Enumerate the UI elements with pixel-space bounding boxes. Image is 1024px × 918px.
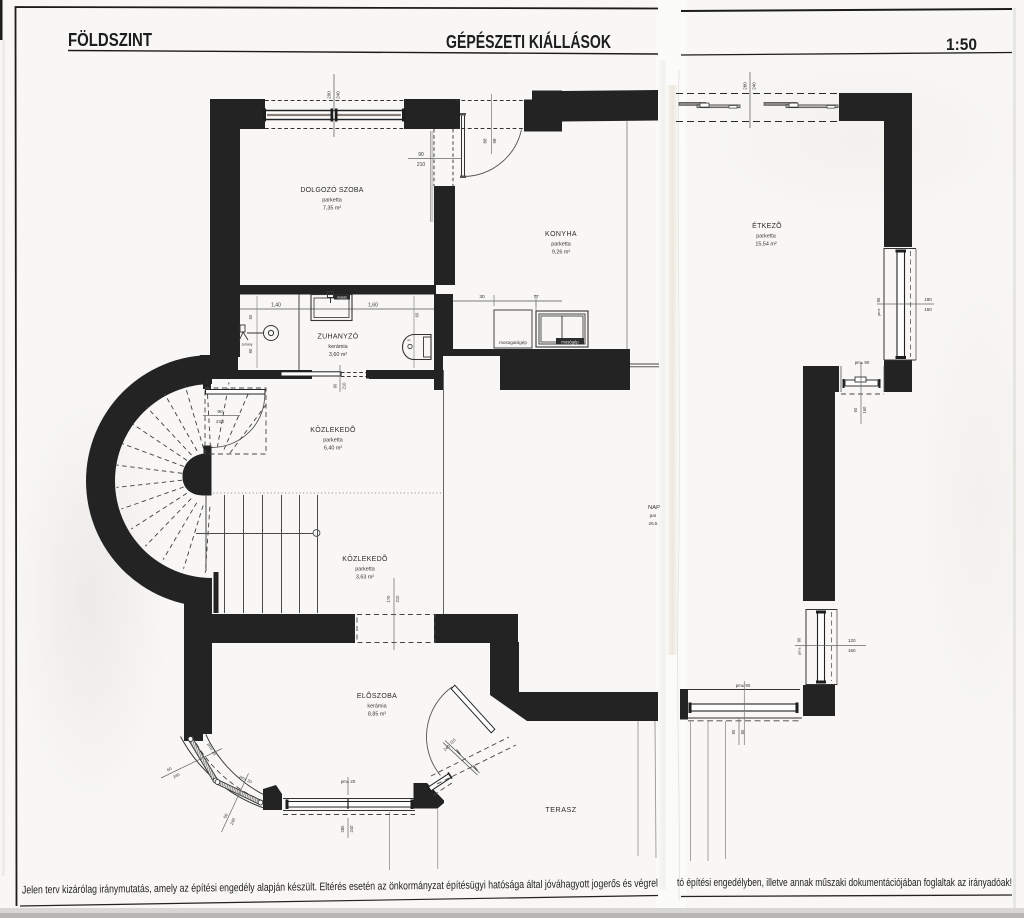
- svg-text:GÉPÉSZETI KIÁLLÁSOK: GÉPÉSZETI KIÁLLÁSOK: [446, 31, 611, 52]
- svg-text:8,85 m²: 8,85 m²: [368, 712, 386, 718]
- svg-text:DOLGOZÓ SZOBA: DOLGOZÓ SZOBA: [300, 185, 363, 194]
- svg-text:1,60: 1,60: [368, 303, 378, 309]
- svg-text:tó építési engedélyben, illetv: tó építési engedélyben, illetve annak mű…: [677, 877, 1012, 889]
- svg-text:120: 120: [848, 638, 856, 643]
- svg-text:1:50: 1:50: [946, 35, 977, 54]
- svg-text:290: 290: [327, 91, 332, 99]
- svg-text:3,60 m²: 3,60 m²: [329, 352, 347, 358]
- svg-text:98: 98: [492, 138, 497, 144]
- svg-text:ÉTKEZÕ: ÉTKEZÕ: [752, 221, 782, 230]
- svg-text:160: 160: [862, 406, 867, 414]
- svg-text:60: 60: [415, 312, 420, 317]
- svg-text:9,26 m²: 9,26 m²: [552, 250, 570, 256]
- svg-text:kerámia: kerámia: [328, 344, 347, 350]
- svg-text:90: 90: [333, 383, 338, 388]
- svg-text:pm± 90: pm± 90: [855, 360, 870, 365]
- svg-text:90: 90: [248, 348, 253, 353]
- svg-text:90: 90: [797, 637, 802, 642]
- svg-text:ELÕSZOBA: ELÕSZOBA: [357, 691, 397, 700]
- svg-text:88: 88: [483, 138, 488, 144]
- svg-text:1,40: 1,40: [271, 303, 281, 309]
- svg-text:90: 90: [731, 729, 736, 734]
- svg-text:TERASZ: TERASZ: [545, 805, 576, 814]
- svg-text:wc: wc: [407, 338, 411, 342]
- svg-text:ZUHANYZÓ: ZUHANYZÓ: [318, 332, 359, 341]
- svg-text:90: 90: [876, 297, 881, 302]
- svg-text:parketta: parketta: [551, 242, 570, 248]
- svg-text:KÖZLEKEDÕ: KÖZLEKEDÕ: [342, 554, 388, 563]
- svg-text:mosógép: mosógép: [561, 339, 579, 344]
- svg-text:FÖLDSZINT: FÖLDSZINT: [68, 29, 153, 50]
- svg-text:170: 170: [386, 595, 391, 603]
- svg-text:26.5: 26.5: [649, 521, 658, 526]
- svg-text:210: 210: [342, 382, 347, 390]
- svg-text:210: 210: [395, 595, 400, 603]
- svg-text:90: 90: [418, 152, 424, 158]
- svg-text:zuhany: zuhany: [242, 343, 253, 347]
- svg-text:parketta: parketta: [323, 438, 342, 444]
- svg-text:mosdó: mosdó: [337, 296, 347, 300]
- svg-text:KONYHA: KONYHA: [545, 231, 577, 238]
- svg-text:30: 30: [479, 294, 485, 300]
- svg-text:7,35 m²: 7,35 m²: [323, 206, 341, 212]
- svg-text:50: 50: [248, 314, 253, 319]
- svg-text:210: 210: [216, 419, 224, 425]
- svg-text:kerámia: kerámia: [367, 704, 386, 710]
- svg-text:160: 160: [848, 648, 856, 653]
- svg-text:77: 77: [533, 294, 539, 300]
- svg-text:3,63 m²: 3,63 m²: [356, 575, 374, 581]
- svg-text:90: 90: [217, 409, 223, 415]
- svg-text:160: 160: [924, 307, 932, 312]
- svg-text:90: 90: [740, 729, 745, 734]
- svg-text:NAP: NAP: [648, 505, 660, 511]
- svg-text:280: 280: [743, 82, 748, 90]
- svg-text:pm± 90: pm± 90: [736, 683, 751, 688]
- svg-text:pm±: pm±: [877, 308, 881, 315]
- svg-text:60: 60: [853, 407, 858, 412]
- svg-text:210: 210: [417, 162, 426, 168]
- svg-text:240: 240: [752, 82, 757, 90]
- svg-text:mosogatógép: mosogatógép: [499, 340, 527, 345]
- svg-text:240: 240: [336, 91, 341, 99]
- svg-text:pm±: pm±: [798, 647, 802, 654]
- svg-text:KÖZLEKEDÕ: KÖZLEKEDÕ: [310, 425, 356, 434]
- svg-text:parketta: parketta: [756, 234, 775, 240]
- svg-text:15,54 m²: 15,54 m²: [755, 242, 776, 248]
- svg-text:par: par: [650, 513, 657, 518]
- svg-text:180: 180: [924, 297, 932, 302]
- svg-text:280: 280: [340, 825, 345, 833]
- svg-text:240: 240: [349, 825, 354, 833]
- svg-text:parketta: parketta: [322, 198, 341, 204]
- svg-text:6,40 m²: 6,40 m²: [324, 446, 342, 452]
- svg-text:parketta: parketta: [355, 567, 374, 573]
